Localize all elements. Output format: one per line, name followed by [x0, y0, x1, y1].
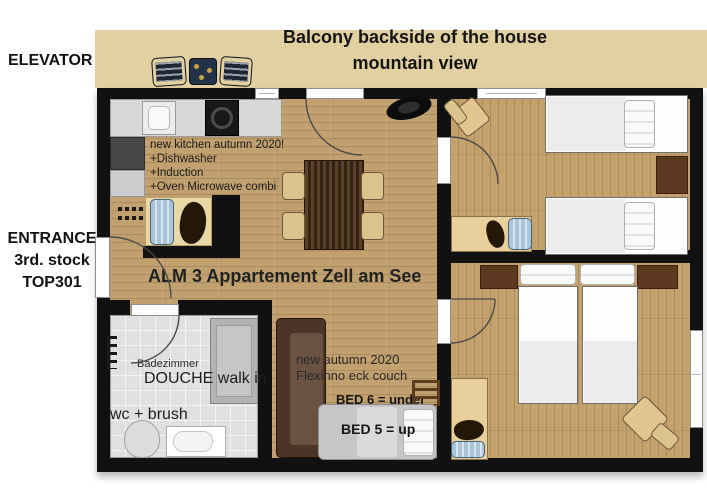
cooktop-ring — [211, 107, 233, 129]
kitchen-note-line-4: +Oven Microwave combi — [150, 180, 285, 194]
bed-duvet — [547, 199, 625, 253]
kitchen-counter — [110, 99, 282, 137]
washbasin-bowl — [173, 431, 213, 452]
entrance-line-1: ENTRANCE — [0, 228, 104, 250]
nook-chair — [150, 199, 174, 245]
kitchen-note-line-3: +Induction — [150, 166, 285, 180]
bed-duvet — [547, 97, 625, 151]
bathroom-label: Badezimmer — [137, 358, 199, 370]
nightstand — [637, 265, 678, 289]
dining-table — [304, 160, 364, 250]
kitchen-tall-cabinet — [110, 137, 145, 170]
hat-decor-crown — [397, 100, 421, 116]
shower-label: DOUCHE walk in — [144, 370, 267, 388]
nightstand — [656, 156, 688, 194]
dining-chair — [282, 212, 305, 240]
towel-radiator — [107, 336, 117, 369]
bathroom-door — [131, 304, 179, 316]
floor-plan-canvas: ELEVATOR ENTRANCE 3rd. stock TOP301 Balc… — [0, 0, 707, 500]
divider-wall-middle — [437, 184, 451, 299]
double-bed-left — [518, 286, 578, 404]
bed-pillow — [624, 202, 655, 250]
balcony-title-line-1: Balcony backside of the house — [250, 24, 580, 50]
apartment-title: ALM 3 Appartement Zell am See — [148, 266, 421, 287]
sink-basin — [148, 106, 170, 130]
desk-chair — [508, 218, 532, 250]
living-window — [255, 88, 279, 99]
bathroom-wall-top-left — [110, 300, 130, 315]
table-dot — [207, 68, 212, 73]
washbasin — [166, 426, 226, 457]
bedroom-right-window — [690, 330, 703, 428]
balcony-chair-left — [151, 56, 187, 87]
dining-chair — [361, 172, 384, 200]
bed-duvet — [520, 341, 577, 403]
dining-chair — [361, 212, 384, 240]
bunk-ladder — [412, 380, 440, 406]
bed-pillow — [624, 100, 655, 148]
bedroom-top-window — [477, 88, 546, 99]
induction-cooktop — [205, 100, 239, 136]
table-dot — [199, 75, 204, 80]
coat-hooks — [118, 207, 122, 211]
entrance-door — [95, 237, 110, 298]
entrance-label: ENTRANCE 3rd. stock TOP301 — [0, 228, 104, 294]
bedroom-bottom-right-door — [437, 299, 451, 344]
double-bed-pillow — [520, 264, 576, 285]
balcony-table — [189, 58, 217, 85]
balcony-title-line-2: mountain view — [250, 50, 580, 76]
entrance-line-2: 3rd. stock — [0, 250, 104, 272]
single-bed-1 — [545, 95, 688, 153]
bed-duvet — [584, 341, 637, 403]
single-bed-2 — [545, 197, 688, 255]
couch-note-line-1: new autumn 2020 — [296, 352, 436, 368]
bathroom-wall-top-right — [178, 300, 272, 315]
nightstand — [480, 265, 518, 289]
elevator-label: ELEVATOR — [8, 52, 108, 70]
kitchen-note-line-1: new kitchen autumn 2020! — [150, 138, 285, 152]
kitchen-note-line-2: +Dishwasher — [150, 152, 285, 166]
nook-wall-bottom — [143, 246, 240, 258]
bedroom-top-right-door — [437, 137, 451, 184]
double-bed-pillow — [580, 264, 635, 285]
walk-in-shower — [210, 318, 258, 404]
entrance-line-3: TOP301 — [0, 272, 104, 294]
table-dot — [194, 64, 199, 69]
kitchen-low-cabinet — [110, 170, 145, 197]
balcony-door — [306, 88, 364, 99]
balcony-title: Balcony backside of the house mountain v… — [250, 24, 580, 76]
balcony-chair-right — [219, 56, 253, 87]
desk-chair — [451, 441, 485, 458]
bed5-label: BED 5 = up — [341, 421, 415, 437]
dining-chair — [282, 172, 305, 200]
kitchen-note: new kitchen autumn 2020! +Dishwasher +In… — [150, 138, 285, 194]
double-bed-right — [582, 286, 638, 404]
toilet — [124, 420, 160, 458]
wc-label: wc + brush — [110, 406, 188, 424]
